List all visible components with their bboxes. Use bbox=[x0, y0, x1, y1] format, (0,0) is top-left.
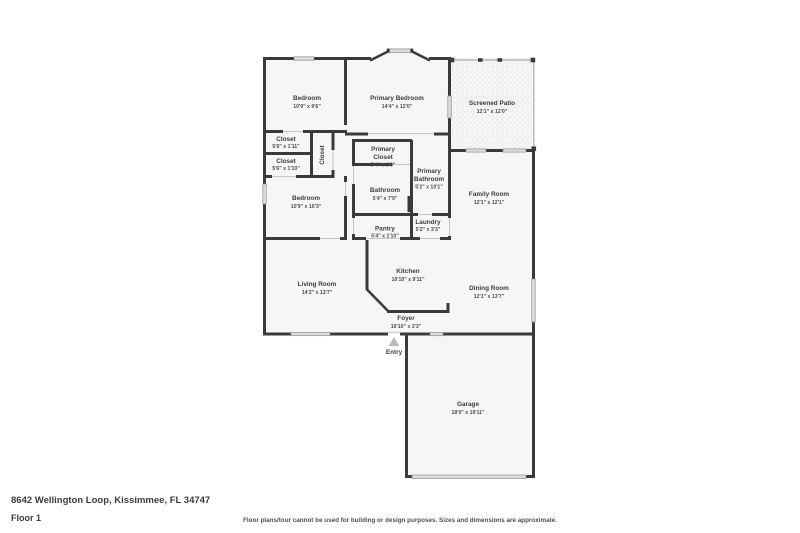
disclaimer-text: Floor plans/tour cannot be used for buil… bbox=[0, 517, 800, 524]
room-label-primary-closet: Primary Closet 5'4" x 3'9" bbox=[371, 146, 396, 169]
room-name: Closet bbox=[319, 144, 326, 164]
room-dims: 12'1" x 12'1" bbox=[474, 200, 505, 206]
plumbing-wall-notch bbox=[408, 196, 413, 212]
room-name: Bathroom bbox=[414, 176, 444, 183]
room-dims: 12'1" x 12'0" bbox=[477, 109, 508, 115]
window bbox=[503, 149, 526, 152]
room-name: Primary Bedroom bbox=[370, 95, 424, 102]
room-dims: 5'6" x 1'11" bbox=[272, 144, 300, 150]
room-name: Primary bbox=[417, 168, 441, 175]
room-name: Bedroom bbox=[293, 95, 321, 102]
room-dims: 5'4" x 7'9" bbox=[373, 196, 398, 202]
room-name: Closet bbox=[276, 136, 296, 143]
patio-post bbox=[498, 58, 503, 62]
room-name: Kitchen bbox=[396, 268, 420, 275]
room-dims: 18'0" x 19'11" bbox=[451, 410, 485, 416]
room-dims: 5'4" x 1'10" bbox=[371, 234, 399, 240]
window bbox=[291, 332, 330, 335]
room-name: Laundry bbox=[415, 219, 441, 226]
room-name: Dining Room bbox=[469, 285, 509, 292]
room-dims: 10'9" x 10'3" bbox=[291, 204, 322, 210]
floor-plan-svg: Entry Bedroom 10'9" x 9'6" Primary Bedro… bbox=[0, 0, 800, 533]
patio-post bbox=[531, 58, 536, 63]
bay-post bbox=[387, 49, 390, 53]
room-name: Living Room bbox=[298, 281, 337, 288]
room-label-primary-bathroom: Primary Bathroom 5'2" x 10'1" bbox=[414, 168, 444, 191]
room-name: Bathroom bbox=[370, 187, 400, 194]
room-dims: 12'1" x 13'7" bbox=[474, 294, 505, 300]
room-name: Family Room bbox=[469, 191, 509, 198]
room-name: Closet bbox=[373, 154, 393, 161]
patio-slider-door bbox=[448, 96, 451, 118]
entry-label: Entry bbox=[386, 349, 403, 356]
room-name: Bedroom bbox=[292, 195, 320, 202]
window bbox=[294, 57, 314, 60]
room-dims: 5'6" x 1'10" bbox=[272, 166, 300, 172]
entry-marker: Entry bbox=[386, 337, 403, 356]
property-address: 8642 Wellington Loop, Kissimmee, FL 3474… bbox=[11, 495, 210, 506]
room-label-closet-vertical: Closet bbox=[319, 144, 326, 164]
room-name: Foyer bbox=[397, 315, 415, 322]
room-name: Pantry bbox=[375, 226, 395, 233]
room-dims: 10'9" x 9'6" bbox=[293, 104, 321, 110]
room-name: Primary bbox=[371, 146, 395, 153]
room-dims: 5'4" x 3'9" bbox=[371, 163, 396, 169]
window bbox=[466, 149, 486, 152]
room-dims: 14'4" x 12'0" bbox=[382, 104, 413, 110]
room-dims: 10'10" x 3'3" bbox=[391, 324, 422, 330]
window bbox=[263, 184, 266, 204]
bay-window bbox=[389, 49, 411, 53]
window bbox=[532, 279, 535, 322]
patio-post bbox=[449, 58, 454, 63]
garage-door bbox=[412, 475, 526, 479]
patio-post bbox=[478, 58, 483, 62]
floor-plan-page: Entry Bedroom 10'9" x 9'6" Primary Bedro… bbox=[0, 0, 800, 533]
room-dims: 10'10" x 9'11" bbox=[391, 277, 425, 283]
room-name: Garage bbox=[457, 401, 479, 408]
room-dims: 14'2" x 13'7" bbox=[302, 290, 333, 296]
patio-post bbox=[532, 147, 537, 152]
entry-arrow-icon bbox=[389, 337, 399, 346]
window bbox=[430, 332, 443, 335]
room-dims: 5'2" x 3'3" bbox=[416, 227, 441, 233]
room-name: Closet bbox=[276, 158, 296, 165]
bay-post bbox=[410, 49, 413, 53]
room-name: Screened Patio bbox=[469, 100, 515, 107]
room-dims: 5'2" x 10'1" bbox=[415, 185, 443, 191]
